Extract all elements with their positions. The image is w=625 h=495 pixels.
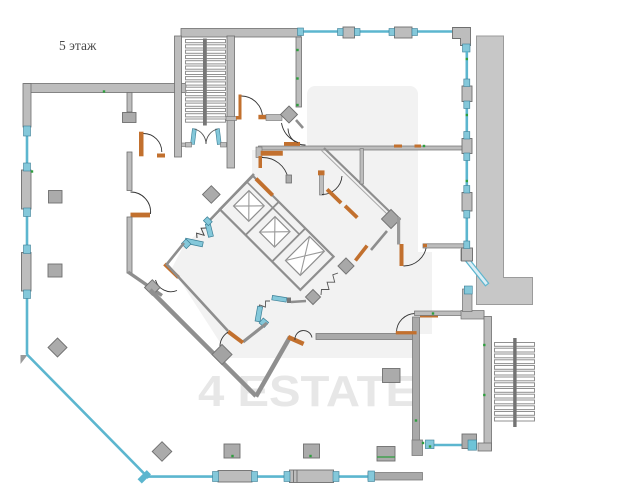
svg-text:5 этаж: 5 этаж — [59, 38, 97, 53]
